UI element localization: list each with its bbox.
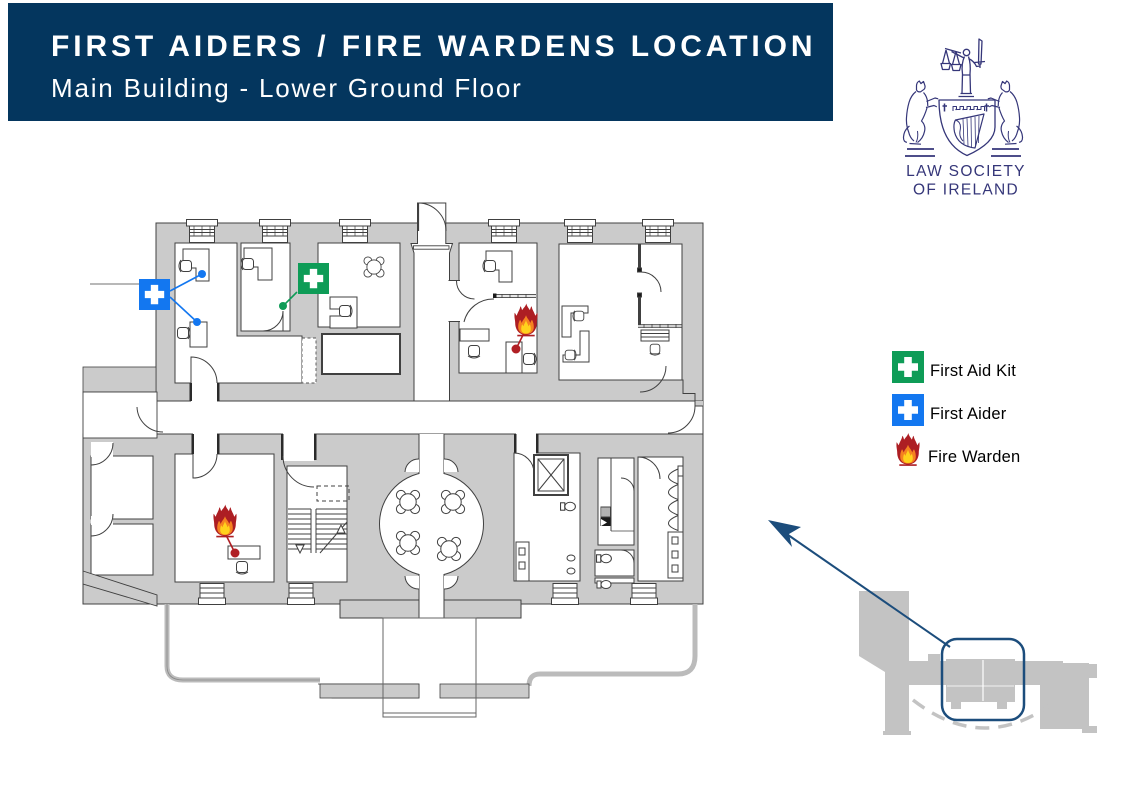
svg-text:First Aid Kit: First Aid Kit <box>930 362 1016 380</box>
svg-text:LAW SOCIETY: LAW SOCIETY <box>906 163 1026 180</box>
svg-text:Fire Warden: Fire Warden <box>928 448 1020 466</box>
svg-text:First Aider: First Aider <box>930 405 1007 423</box>
svg-text:OF IRELAND: OF IRELAND <box>913 182 1019 199</box>
